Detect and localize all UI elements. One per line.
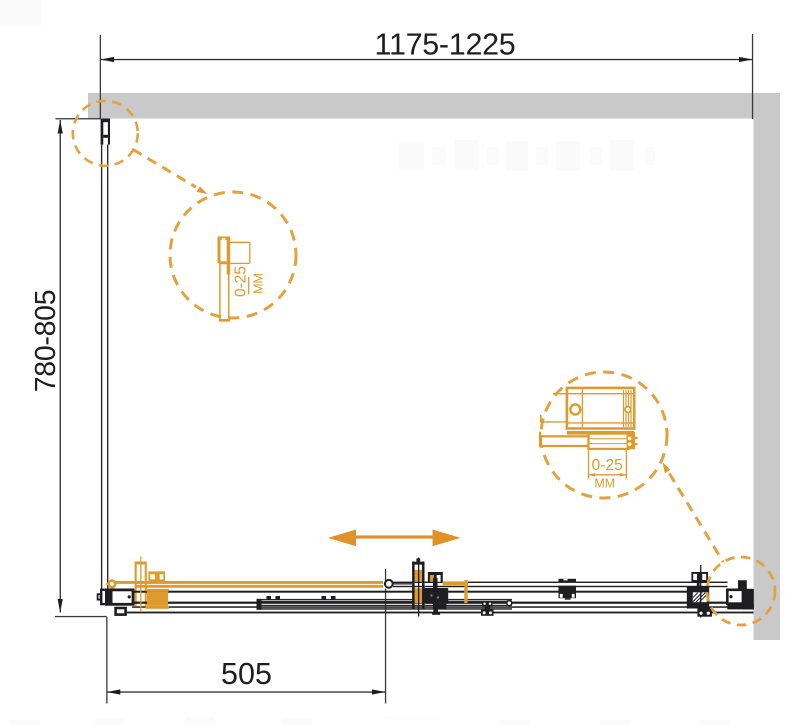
- svg-text:0-25: 0-25: [592, 457, 623, 474]
- svg-text:780-805: 780-805: [30, 290, 62, 393]
- svg-text:ММ: ММ: [251, 273, 265, 294]
- svg-text:1175-1225: 1175-1225: [375, 28, 516, 62]
- svg-text:0-25: 0-25: [233, 266, 250, 297]
- svg-text:ММ: ММ: [594, 477, 615, 491]
- svg-text:505: 505: [221, 657, 272, 691]
